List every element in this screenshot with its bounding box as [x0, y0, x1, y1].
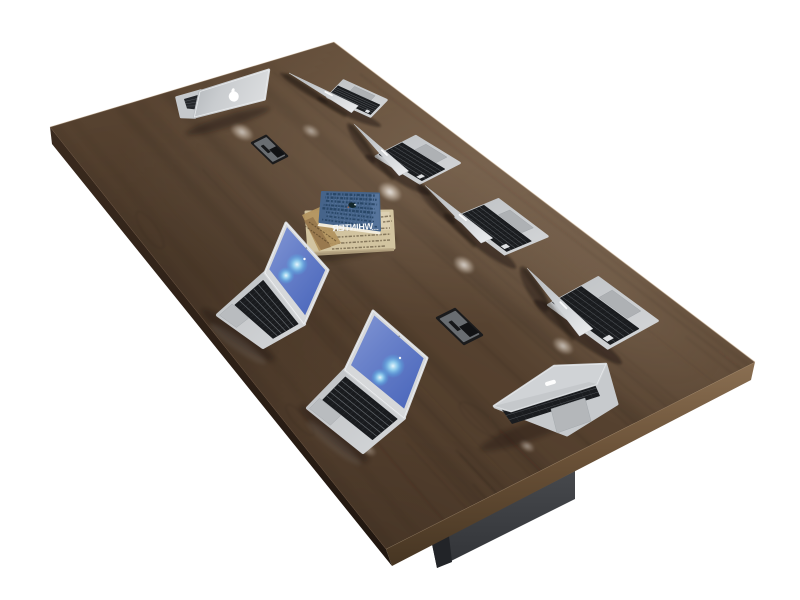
svg-text:....: .... — [372, 225, 379, 232]
